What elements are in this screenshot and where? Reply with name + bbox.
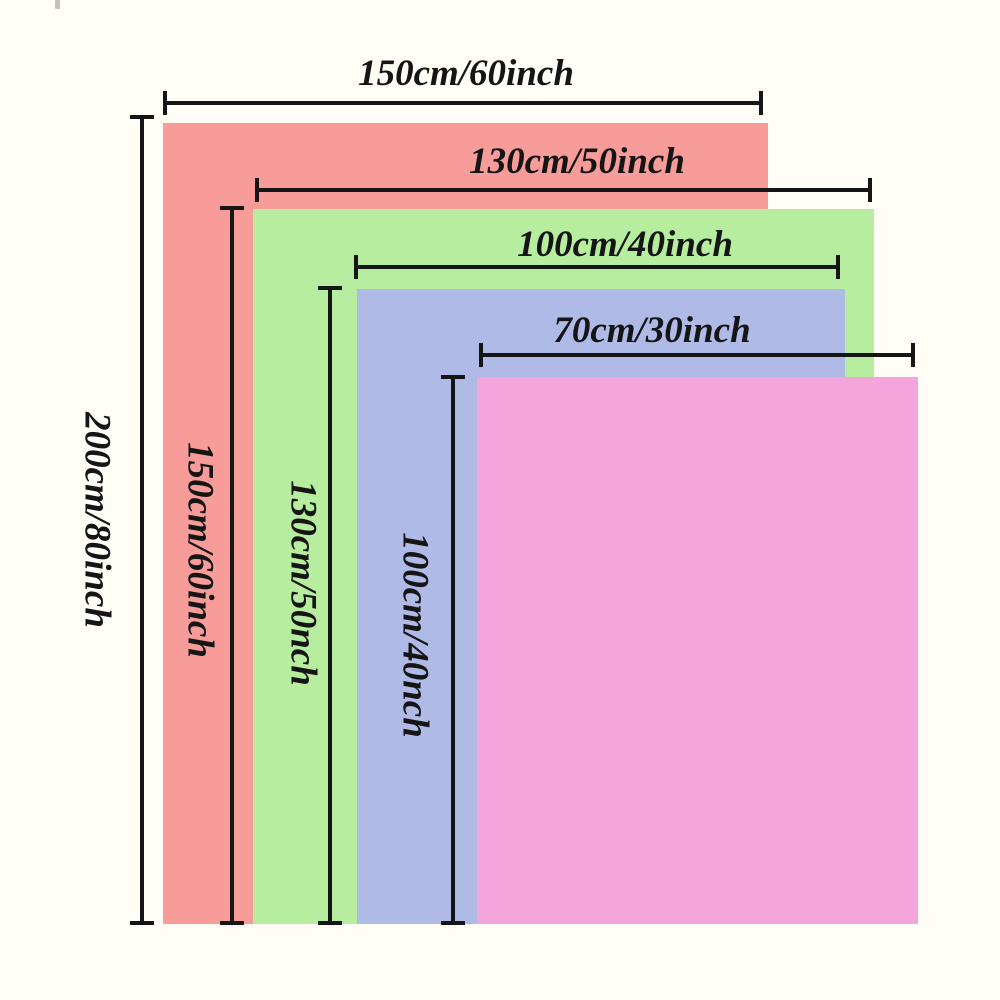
width-label-red: 150cm/60inch [358, 55, 574, 92]
height-label-red: 200cm/80inch [79, 412, 116, 628]
width-dim-line-red [165, 101, 761, 105]
width-label-blue: 100cm/40inch [517, 226, 733, 263]
height-label-blue: 130cm/50nch [285, 480, 322, 686]
height-label-pink: 100cm/40nch [397, 532, 434, 738]
width-label-pink: 70cm/30inch [553, 312, 750, 349]
height-label-green: 150cm/60inch [182, 442, 219, 658]
size-chart-diagram: 150cm/60inch 130cm/50inch 100cm/40inch 7… [0, 0, 1000, 1000]
height-dim-line-blue [328, 288, 332, 923]
height-dim-line-red [140, 117, 144, 923]
sheet-pink [477, 377, 918, 924]
height-dim-line-pink [451, 377, 455, 923]
print-speck [55, 0, 60, 9]
width-dim-line-green [257, 188, 870, 192]
height-dim-line-green [230, 208, 234, 923]
width-label-green: 130cm/50inch [469, 143, 685, 180]
width-dim-line-pink [481, 353, 913, 357]
width-dim-line-blue [356, 265, 838, 269]
